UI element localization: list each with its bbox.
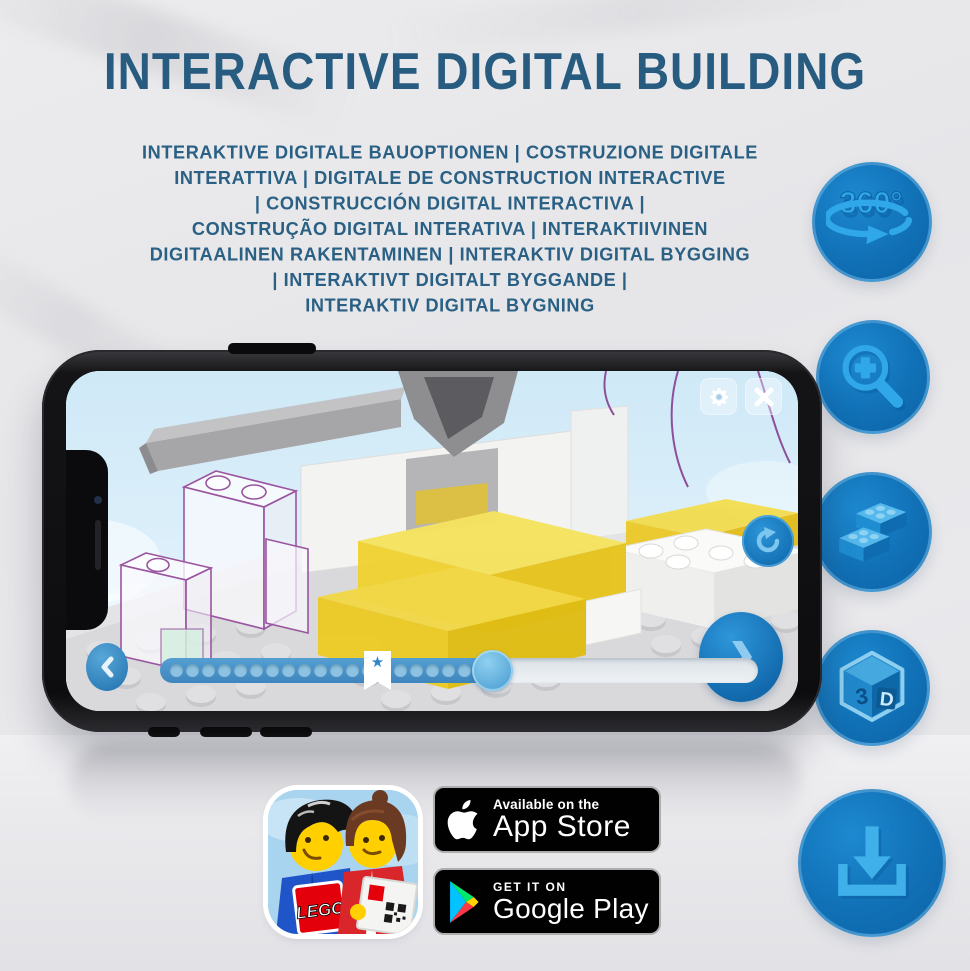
- google-play-line1: GET IT ON: [493, 880, 649, 894]
- slider-dot: [426, 664, 439, 677]
- google-play-line2: Google Play: [493, 894, 649, 923]
- feature-circle-zoom: [816, 320, 930, 434]
- slider-handle[interactable]: [472, 650, 513, 691]
- slider-dots: [170, 664, 471, 677]
- slider-dot: [186, 664, 199, 677]
- slider-dot: [442, 664, 455, 677]
- feature-circle-360: 360° 360°: [812, 162, 932, 282]
- chevron-left-icon: [99, 656, 115, 678]
- subtitle-line: CONSTRUÇÃO DIGITAL INTERATIVA | INTERAKT…: [117, 216, 783, 242]
- slider-dot: [298, 664, 311, 677]
- slider-dot: [458, 664, 471, 677]
- download-icon: [825, 820, 919, 906]
- google-play-badge[interactable]: GET IT ON Google Play: [433, 868, 661, 935]
- feature-circle-download: [798, 789, 946, 937]
- gear-icon: [707, 385, 731, 409]
- slider-dot: [282, 664, 295, 677]
- subtitle-line: DIGITAALINEN RAKENTAMINEN | INTERAKTIV D…: [117, 241, 783, 267]
- subtitle-line: INTERAKTIV DIGITAL BYGNING: [117, 292, 783, 318]
- close-icon: [753, 386, 775, 408]
- rotate-360-icon: 360° 360°: [826, 180, 918, 264]
- subtitle-line: INTERAKTIVE DIGITALE BAUOPTIONEN | COSTR…: [117, 139, 783, 165]
- phone-volume-button: [260, 727, 312, 737]
- page-title: INTERACTIVE DIGITAL BUILDING: [0, 41, 970, 101]
- subtitle-line: INTERATTIVA | DIGITALE DE CONSTRUCTION I…: [117, 165, 783, 191]
- zoom-in-icon: [835, 339, 911, 415]
- phone-volume-button: [148, 727, 180, 737]
- previous-step-button[interactable]: [86, 643, 128, 691]
- subtitle-line: | INTERAKTIVT DIGITALT BYGGANDE |: [117, 267, 783, 293]
- rotation-arrow-head: [866, 226, 888, 244]
- slider-dot: [218, 664, 231, 677]
- multilingual-subtitle: INTERAKTIVE DIGITALE BAUOPTIONEN | COSTR…: [117, 139, 783, 318]
- lego-bricks-icon: [830, 493, 914, 571]
- close-button[interactable]: [745, 378, 782, 415]
- slider-dot: [170, 664, 183, 677]
- slider-dot: [330, 664, 343, 677]
- app-store-badge[interactable]: Available on the App Store: [433, 786, 661, 853]
- app-icon-art: LEGO: [268, 790, 418, 934]
- slider-dot: [234, 664, 247, 677]
- app-store-text: Available on the App Store: [493, 797, 631, 842]
- cube-3d-icon: 3 D: [832, 648, 912, 728]
- star-icon: ★: [371, 651, 384, 675]
- phone-side-button: [228, 343, 316, 354]
- label-d: D: [879, 689, 895, 711]
- google-play-logo-icon: [435, 879, 493, 925]
- app-store-line2: App Store: [493, 812, 631, 842]
- rotate-arrow-icon: [752, 525, 784, 557]
- slider-dot: [266, 664, 279, 677]
- next-step-button[interactable]: [699, 612, 783, 702]
- google-play-text: GET IT ON Google Play: [493, 880, 649, 923]
- phone-volume-button: [200, 727, 252, 737]
- rotate-model-button[interactable]: [742, 515, 794, 567]
- slider-dot: [394, 664, 407, 677]
- slider-dot: [410, 664, 423, 677]
- plus-horizontal: [855, 363, 876, 372]
- build-progress-slider[interactable]: ★: [160, 658, 758, 683]
- slider-dot: [202, 664, 215, 677]
- subtitle-line: | CONSTRUCCIÓN DIGITAL INTERACTIVA |: [117, 190, 783, 216]
- apple-logo-icon: [435, 800, 493, 840]
- phone-notch: [66, 450, 108, 630]
- lego-builder-app-icon[interactable]: LEGO: [268, 790, 418, 934]
- smartphone: ★: [42, 350, 822, 732]
- settings-button[interactable]: [700, 378, 737, 415]
- magnifier-handle: [881, 385, 898, 402]
- feature-circle-bricks: [812, 472, 932, 592]
- slider-dot: [250, 664, 263, 677]
- download-arrow: [853, 826, 891, 879]
- slider-dot: [346, 664, 359, 677]
- marketing-image: INTERACTIVE DIGITAL BUILDING INTERAKTIVE…: [0, 0, 970, 971]
- front-camera: [94, 496, 102, 504]
- phone-screen: ★: [66, 371, 798, 711]
- speaker-slit: [95, 520, 101, 570]
- slider-filled-track: [160, 658, 494, 683]
- feature-circle-3d: 3 D: [814, 630, 930, 746]
- slider-dot: [314, 664, 327, 677]
- instruction-card: [357, 877, 418, 934]
